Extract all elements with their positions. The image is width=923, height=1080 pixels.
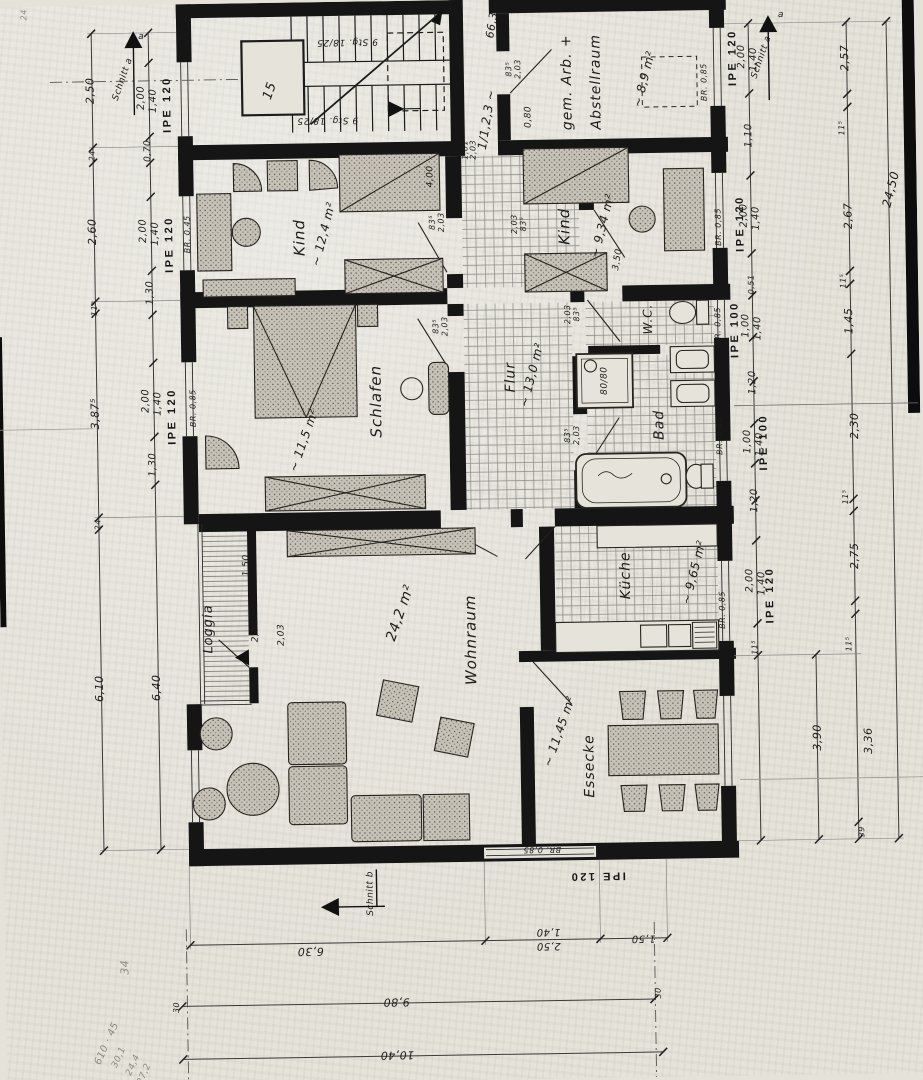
section-label-b: Schnitt b <box>365 871 376 916</box>
dims_right-10: 1,40 <box>754 432 765 456</box>
room-area-kueche: ~ 9,65 m² <box>679 539 709 606</box>
room-label-gem-arb-2: Abstellraum <box>587 34 604 130</box>
dims_right-16: 11⁵ <box>837 120 846 135</box>
room-area-essecke: ~ 11,45 m² <box>541 694 578 768</box>
dims_right-8: 1,20 <box>747 370 758 394</box>
shower-size-note: 80/80 <box>599 366 609 395</box>
room-label-kind-2: Kind <box>555 208 574 245</box>
dims_right-27: 24,50 <box>879 170 902 209</box>
dims_right-25: 3,36 <box>862 727 875 754</box>
room-area-wohnraum: 24,2 m² <box>383 583 417 643</box>
room-area-kind-1: ~ 12,4 m² <box>309 201 339 268</box>
door_dims-2: 83⁵ <box>428 215 437 230</box>
dims_left-9: 0,70 <box>143 140 153 162</box>
dims_left-17: 24 <box>19 9 28 20</box>
dims_left-14: 1,40 <box>152 392 163 416</box>
dims_left-13: 2,00 <box>140 389 151 413</box>
dims_left-3: 11⁵ <box>90 301 99 316</box>
door_dims-4: 2,03 <box>510 214 519 234</box>
room-label-wc: W.C. <box>640 303 654 334</box>
dims_bottom-1: 1,40 <box>536 926 560 937</box>
dims_right-4: 1,40 <box>750 206 761 230</box>
room-label-loggia: Loggia <box>201 604 217 654</box>
dims_left-11: 1,40 <box>150 222 161 246</box>
dims_right-6: 1,00 <box>740 313 751 337</box>
beam-label-left-3: IPE 120 <box>166 388 179 445</box>
parapet-note: BR. 0,85 <box>717 591 727 629</box>
parapet-note: BR. 0,45 <box>183 215 193 253</box>
section-letter-a-right: a <box>778 10 784 20</box>
door_dims-9: 83⁵ <box>572 307 581 322</box>
dims_right-18: 11⁵ <box>839 273 848 288</box>
room-area-gem-arb: ~ 8,9 m² <box>630 50 658 109</box>
door_dims-12: 0,80 <box>523 106 533 128</box>
room-label-bad: Bad <box>651 410 667 440</box>
dims_right-26: 39 <box>857 826 866 837</box>
room-label-kind-1: Kind <box>290 219 309 256</box>
dims_bottom-0: 6,30 <box>297 945 324 958</box>
stair-note-lower-flight: 9 Stg. 18/25 <box>297 115 358 126</box>
labels-layer: 15gem. Arb. +Abstellraum~ 8,9 m²Kind~ 12… <box>0 0 923 1080</box>
door_dims-1: 2,03 <box>513 59 522 79</box>
door_dims-0: 83⁵ <box>504 62 513 77</box>
dims_right-22: 2,75 <box>848 542 861 569</box>
margin-note: 1/1,2,3 ~ <box>475 89 498 151</box>
dims_right-20: 2,30 <box>848 412 861 439</box>
room-label-schlafen: Schlafen <box>366 365 385 438</box>
dims_right-0: 2,00 <box>736 44 747 68</box>
room-note-stair-shaft: 15 <box>260 80 280 101</box>
interior_dims-1: 3,50 <box>611 248 624 271</box>
pencil-note: 30,1 <box>110 1045 128 1069</box>
stair-note-upper-flight: 9 Stg. 18/25 <box>317 36 378 47</box>
dims_bottom-3: 1,50 <box>631 932 655 943</box>
parapet-note: BR. 0,85 <box>715 417 725 455</box>
dims_left-1: 24 <box>87 150 96 161</box>
room-label-flur: Flur <box>502 362 518 393</box>
door_dims-13: 2,03 <box>276 624 286 646</box>
dims_right-13: 1,40 <box>756 571 767 595</box>
dims_right-14: 11⁵ <box>750 640 759 655</box>
beam-label-left-2: IPE 120 <box>163 216 176 273</box>
parapet-note: BR. 0,85 <box>713 208 723 246</box>
dims_right-12: 2,00 <box>744 568 755 592</box>
pencil-note: 34 <box>118 960 131 975</box>
dims_right-15: 2,57 <box>838 45 851 72</box>
room-label-kueche: Küche <box>617 551 634 599</box>
dims_bottom-5: 30 <box>172 1002 181 1013</box>
room-label-gem-arb-1: gem. Arb. + <box>558 34 576 130</box>
dims_left-7: 2,00 <box>135 86 146 110</box>
door_dims-11: 2,03 <box>572 425 581 445</box>
dims_left-8: 1,40 <box>148 89 159 113</box>
dims_left-4: 3,87⁵ <box>88 398 101 430</box>
section-letter-a-left: a <box>138 32 144 42</box>
room-label-wohnraum: Wohnraum <box>461 594 480 685</box>
dims_right-24: 3,90 <box>811 724 824 751</box>
margin-note: 1,01 <box>460 140 469 160</box>
dims_bottom-4: 9,80 <box>383 995 410 1008</box>
dims_left-5: 24 <box>93 519 102 530</box>
interior_dims-0: 4,00 <box>425 165 435 187</box>
dims_bottom-2: 2,50 <box>536 940 560 951</box>
beam-label-left-1: IPE 120 <box>161 76 174 133</box>
dims_left-0: 2,50 <box>83 77 96 104</box>
door_dims-3: 2,03 <box>437 212 446 232</box>
dims_right-7: 1,40 <box>752 316 763 340</box>
dims_right-23: 11⁵ <box>844 636 853 651</box>
dims_right-1: 1,40 <box>748 47 759 71</box>
door_dims-8: 2,03 <box>563 304 572 324</box>
parapet-note: BR. 0,85 <box>188 389 198 427</box>
room-label-essecke: Essecke <box>581 734 598 798</box>
dims_left-10: 2,00 <box>138 219 149 243</box>
door_dims-10: 83⁵ <box>563 428 572 443</box>
dims_right-5: 0,51 <box>747 274 756 294</box>
dims_right-9: 1,00 <box>742 429 753 453</box>
dims_right-3: 2,00 <box>738 203 749 227</box>
room-area-schlafen: ~ 11,5 m² <box>286 407 321 473</box>
margin-note: 66,3 — <box>483 0 502 39</box>
dims_left-6: 6,10 <box>93 675 106 702</box>
room-area-kind-2: ~ 9,34 m² <box>587 192 617 259</box>
paper-sheet: 15gem. Arb. +Abstellraum~ 8,9 m²Kind~ 12… <box>0 0 923 1080</box>
dims_right-11: 1,20 <box>749 488 760 512</box>
dims_right-19: 1,45 <box>842 308 855 335</box>
dims_right-17: 2,67 <box>841 203 854 230</box>
dims_right-21: 11⁵ <box>841 489 850 504</box>
dims_bottom-6: 30 <box>654 987 663 998</box>
dims_left-2: 2,60 <box>86 218 99 245</box>
scanned-floor-plan: 15gem. Arb. +Abstellraum~ 8,9 m²Kind~ 12… <box>0 0 923 1080</box>
dims_left-12: 1,30 <box>145 281 156 305</box>
beam-label-bottom: IPE 120 <box>569 869 626 882</box>
margin-note: 2,03 <box>468 140 477 160</box>
door_dims-5: 83⁵ <box>519 216 528 231</box>
interior_dims-2: 1,50 <box>241 554 251 576</box>
section-label-a-left: Schnitt a <box>111 57 135 102</box>
door_dims-7: 2,03 <box>440 316 449 336</box>
parapet-note: BR. 0,85 <box>713 307 723 345</box>
room-area-flur: ~ 13,0 m² <box>517 341 547 408</box>
dims_left-15: 1,30 <box>147 453 158 477</box>
parapet-note: BR. 0,85 <box>699 63 709 101</box>
dims_left-16: 6,40 <box>150 674 163 701</box>
interior_dims-3: 2,00 <box>250 620 260 642</box>
dims_right-2: 1,10 <box>743 123 754 147</box>
parapet-note: BR. 0,85 <box>523 845 561 855</box>
dims_bottom-7: 10,40 <box>380 1048 414 1062</box>
door_dims-6: 83⁵ <box>431 319 440 334</box>
